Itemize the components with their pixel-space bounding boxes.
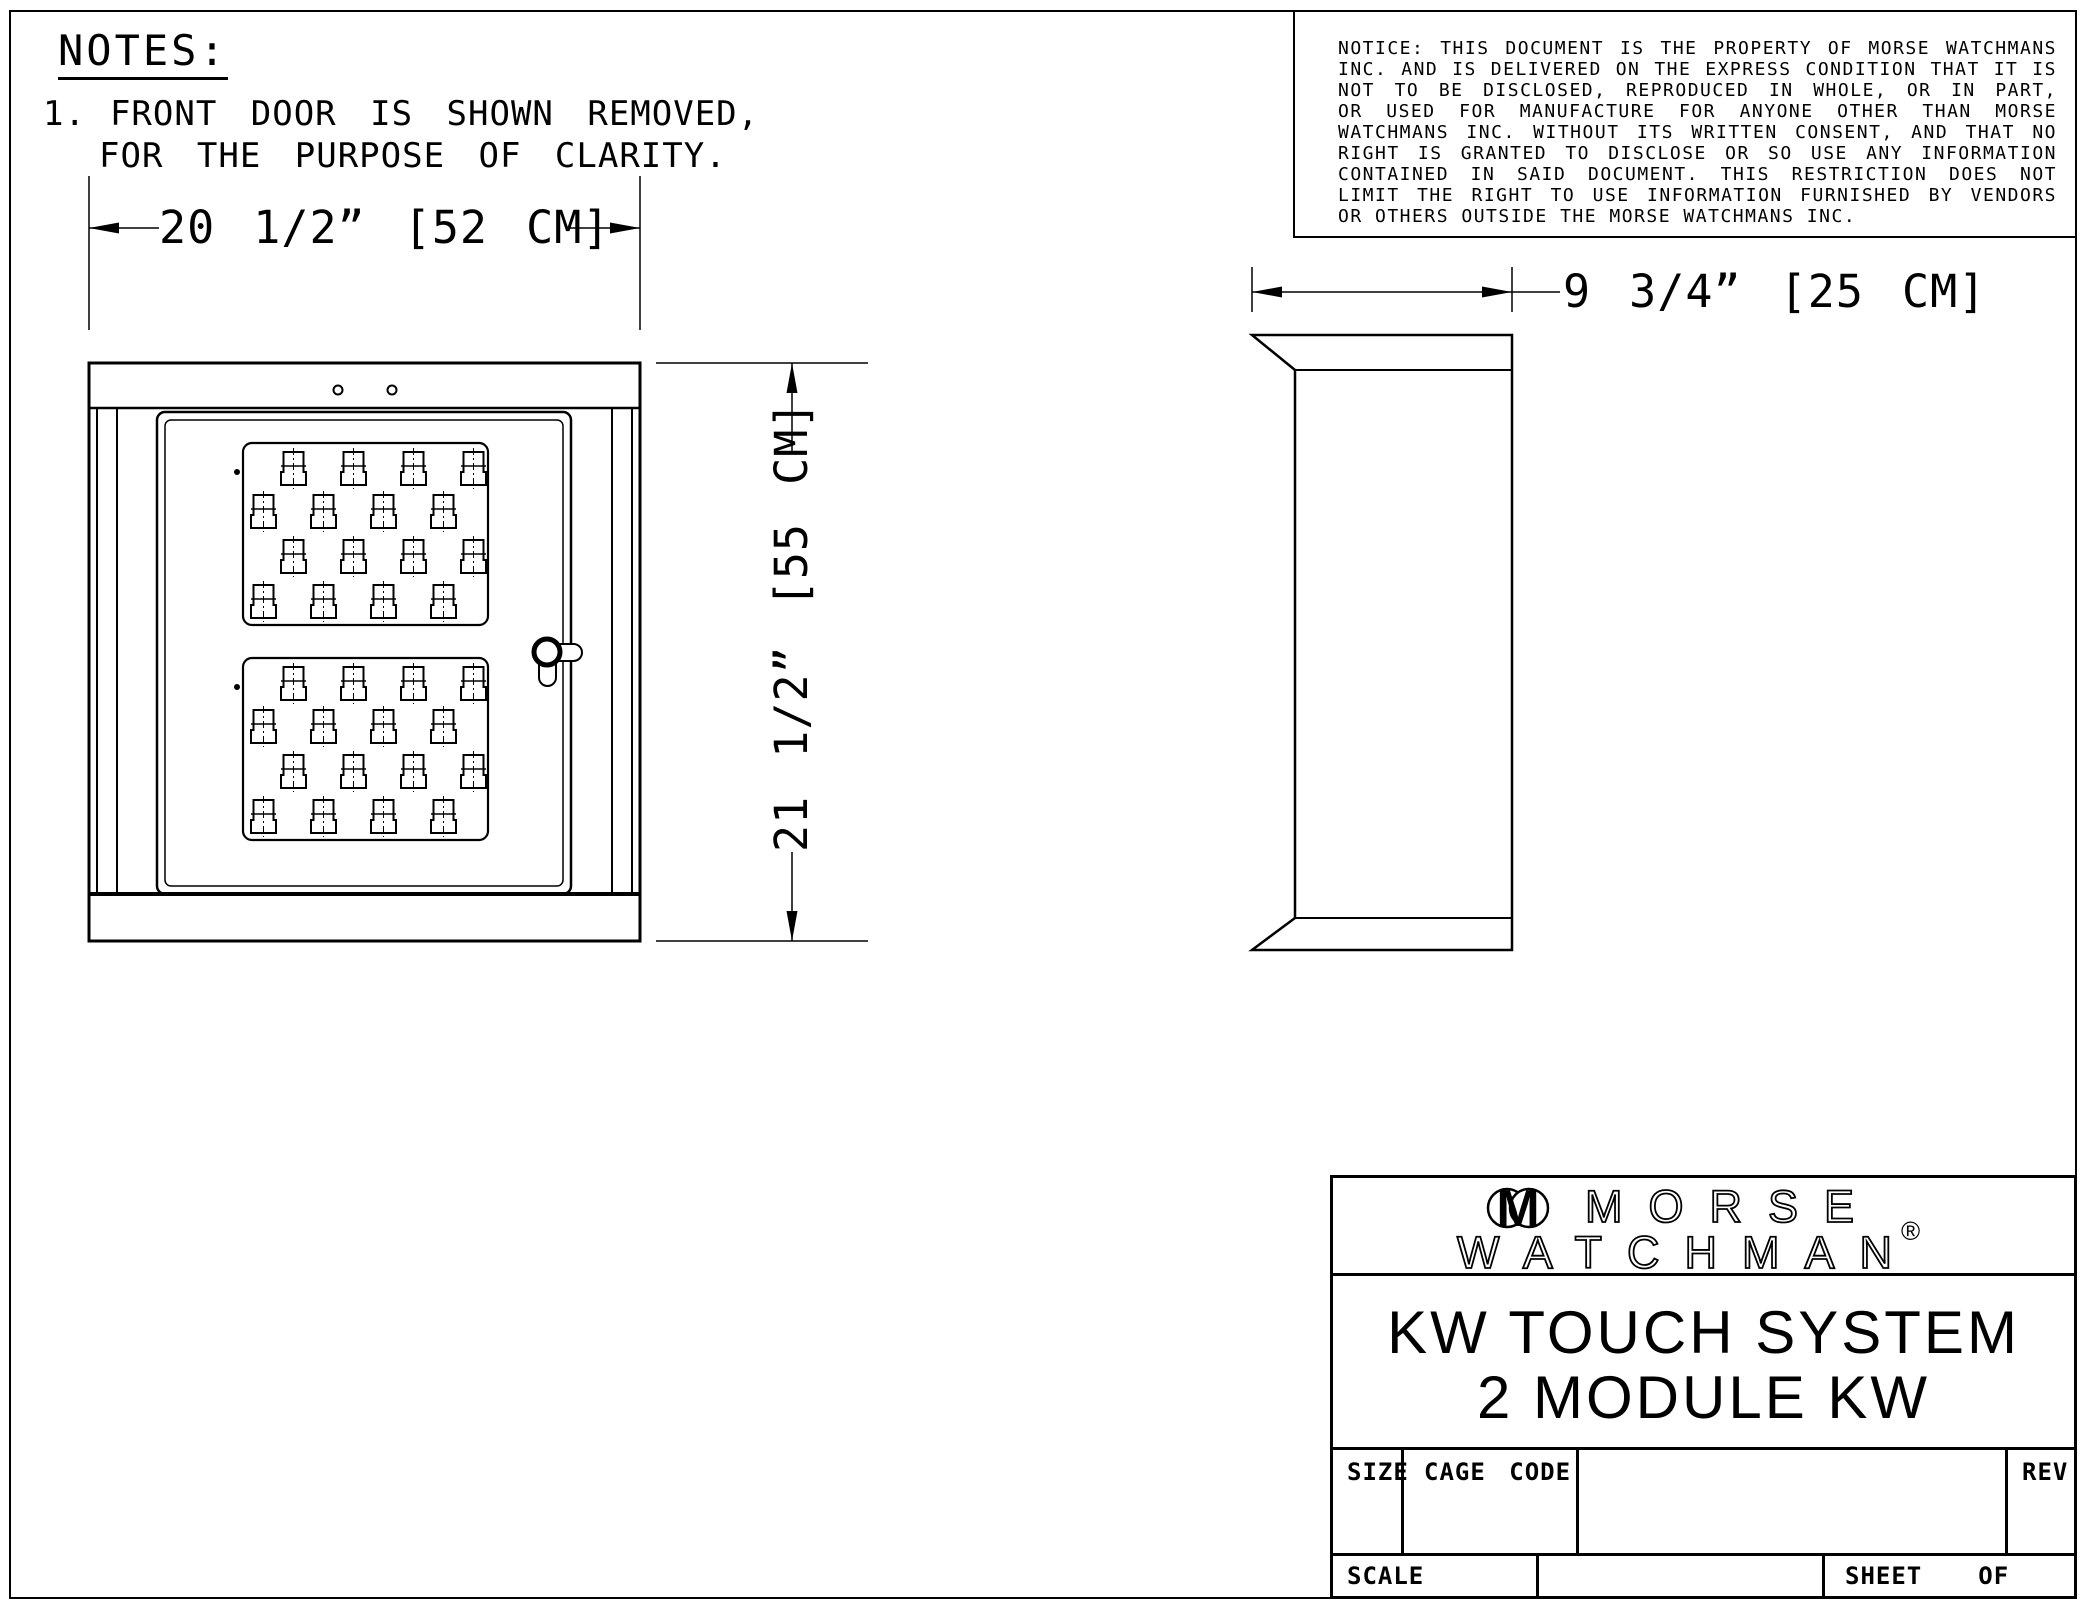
registered-trademark-icon: ®	[1901, 1216, 1920, 1246]
scale-value-cell	[1539, 1556, 1825, 1596]
size-cell: SIZE	[1333, 1450, 1404, 1553]
notice-line: INC. AND IS DELIVERED ON THE EXPRESS CON…	[1338, 59, 2057, 80]
door-lock-icon	[534, 639, 582, 686]
note-item-line1: 1.FRONT DOOR IS SHOWN REMOVED,	[43, 94, 759, 134]
key-slots-module-1	[251, 448, 486, 622]
title-block-scale-row: SCALE SHEET OF	[1333, 1556, 2074, 1596]
notice-line: NOT TO BE DISCLOSED, REPRODUCED IN WHOLE…	[1338, 80, 2057, 101]
notes-heading: NOTES:	[58, 26, 228, 80]
title-block-brand-row: M MORSE WATCHMAN ®	[1333, 1178, 2074, 1276]
module-1-indicator-dot	[234, 469, 240, 475]
title-block: M MORSE WATCHMAN ® KW TOUCH SYSTEM 2 MOD…	[1330, 1175, 2077, 1599]
notice-line: WATCHMANS INC. WITHOUT ITS WRITTEN CONSE…	[1338, 122, 2057, 143]
size-label: SIZE	[1347, 1458, 1409, 1486]
side-view-drawing	[1252, 335, 1512, 950]
dimension-front-height-lines	[656, 363, 868, 941]
notice-block: NOTICE: THIS DOCUMENT IS THE PROPERTY OF…	[1293, 10, 2077, 238]
notice-line: NOTICE: THIS DOCUMENT IS THE PROPERTY OF…	[1338, 38, 2057, 59]
notes-block: NOTES: 1.FRONT DOOR IS SHOWN REMOVED, FO…	[43, 26, 759, 176]
cage-code-cell: CAGE CODE	[1404, 1450, 1579, 1553]
screw-hole	[334, 386, 343, 395]
title-block-product-row: KW TOUCH SYSTEM 2 MODULE KW	[1333, 1276, 2074, 1450]
sheet-cell: SHEET OF	[1825, 1556, 2074, 1596]
product-title-line1: KW TOUCH SYSTEM	[1333, 1298, 2074, 1367]
rev-cell: REV	[2008, 1450, 2074, 1553]
key-slots-module-2	[251, 663, 486, 837]
cage-code-label: CAGE CODE	[1424, 1458, 1571, 1486]
note-item-line2: FOR THE PURPOSE OF CLARITY.	[99, 136, 759, 176]
scale-cell: SCALE	[1333, 1556, 1539, 1596]
notice-line: CONTAINED IN SAID DOCUMENT. THIS RESTRIC…	[1338, 164, 2057, 185]
scale-label: SCALE	[1347, 1562, 1424, 1590]
dimension-front-height-label: 21 1/2” [55 CM]	[769, 452, 815, 852]
engineering-drawing-sheet: NOTES: 1.FRONT DOOR IS SHOWN REMOVED, FO…	[0, 0, 2087, 1609]
notice-line: RIGHT IS GRANTED TO DISCLOSE OR SO USE A…	[1338, 143, 2057, 164]
dimension-side-depth-lines	[1252, 267, 1560, 312]
drawing-number-cell	[1579, 1450, 2008, 1553]
brand-name-morse: MORSE	[1585, 1181, 1880, 1232]
notice-line: OR USED FOR MANUFACTURE FOR ANYONE OTHER…	[1338, 101, 2057, 122]
dimension-front-width-label: 20 1/2” [52 CM]	[159, 205, 569, 251]
note-item-number: 1.	[43, 94, 86, 134]
rev-label: REV	[2022, 1458, 2068, 1486]
module-2-indicator-dot	[234, 684, 240, 690]
product-title-line2: 2 MODULE KW	[1333, 1363, 2074, 1432]
notice-line: LIMIT THE RIGHT TO USE INFORMATION FURNI…	[1338, 185, 2057, 206]
sheet-label: SHEET	[1845, 1562, 1922, 1590]
notice-line: OR OTHERS OUTSIDE THE MORSE WATCHMANS IN…	[1338, 206, 2057, 227]
dimension-side-depth-label: 9 3/4” [25 CM]	[1563, 269, 1983, 315]
screw-hole	[388, 386, 397, 395]
morse-watchman-logo: M MORSE WATCHMAN ®	[1455, 1178, 1925, 1273]
of-label: OF	[1978, 1562, 2009, 1590]
brand-name-watchman: WATCHMAN	[1457, 1227, 1917, 1273]
title-block-size-row: SIZE CAGE CODE REV	[1333, 1450, 2074, 1556]
